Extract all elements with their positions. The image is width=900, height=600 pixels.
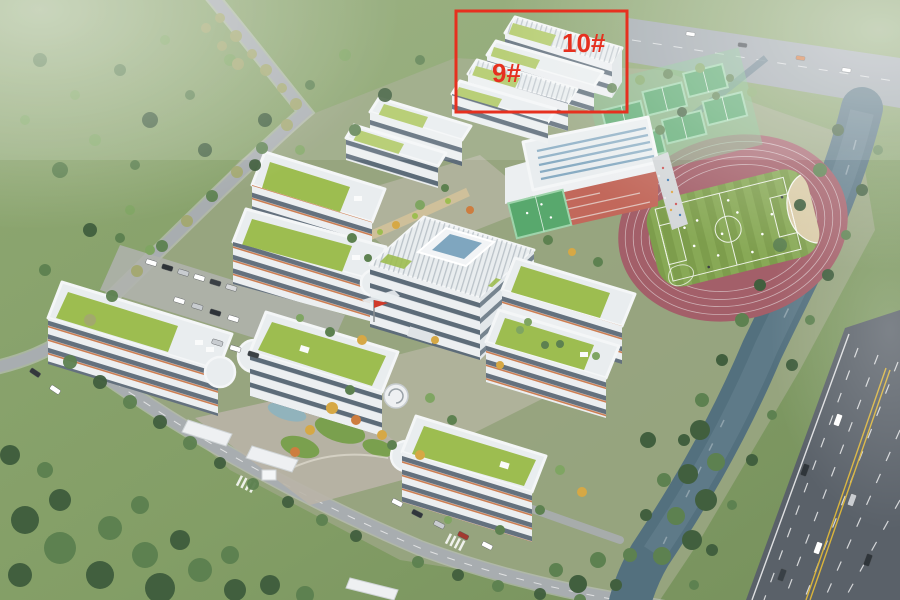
spiral-gazebo [384,384,408,408]
campus-rendering-image: 10# 9# [0,0,900,600]
label-building-10: 10# [562,28,606,58]
label-building-9: 9# [492,58,521,88]
campus-rendering-canvas: 10# 9# [0,0,900,600]
